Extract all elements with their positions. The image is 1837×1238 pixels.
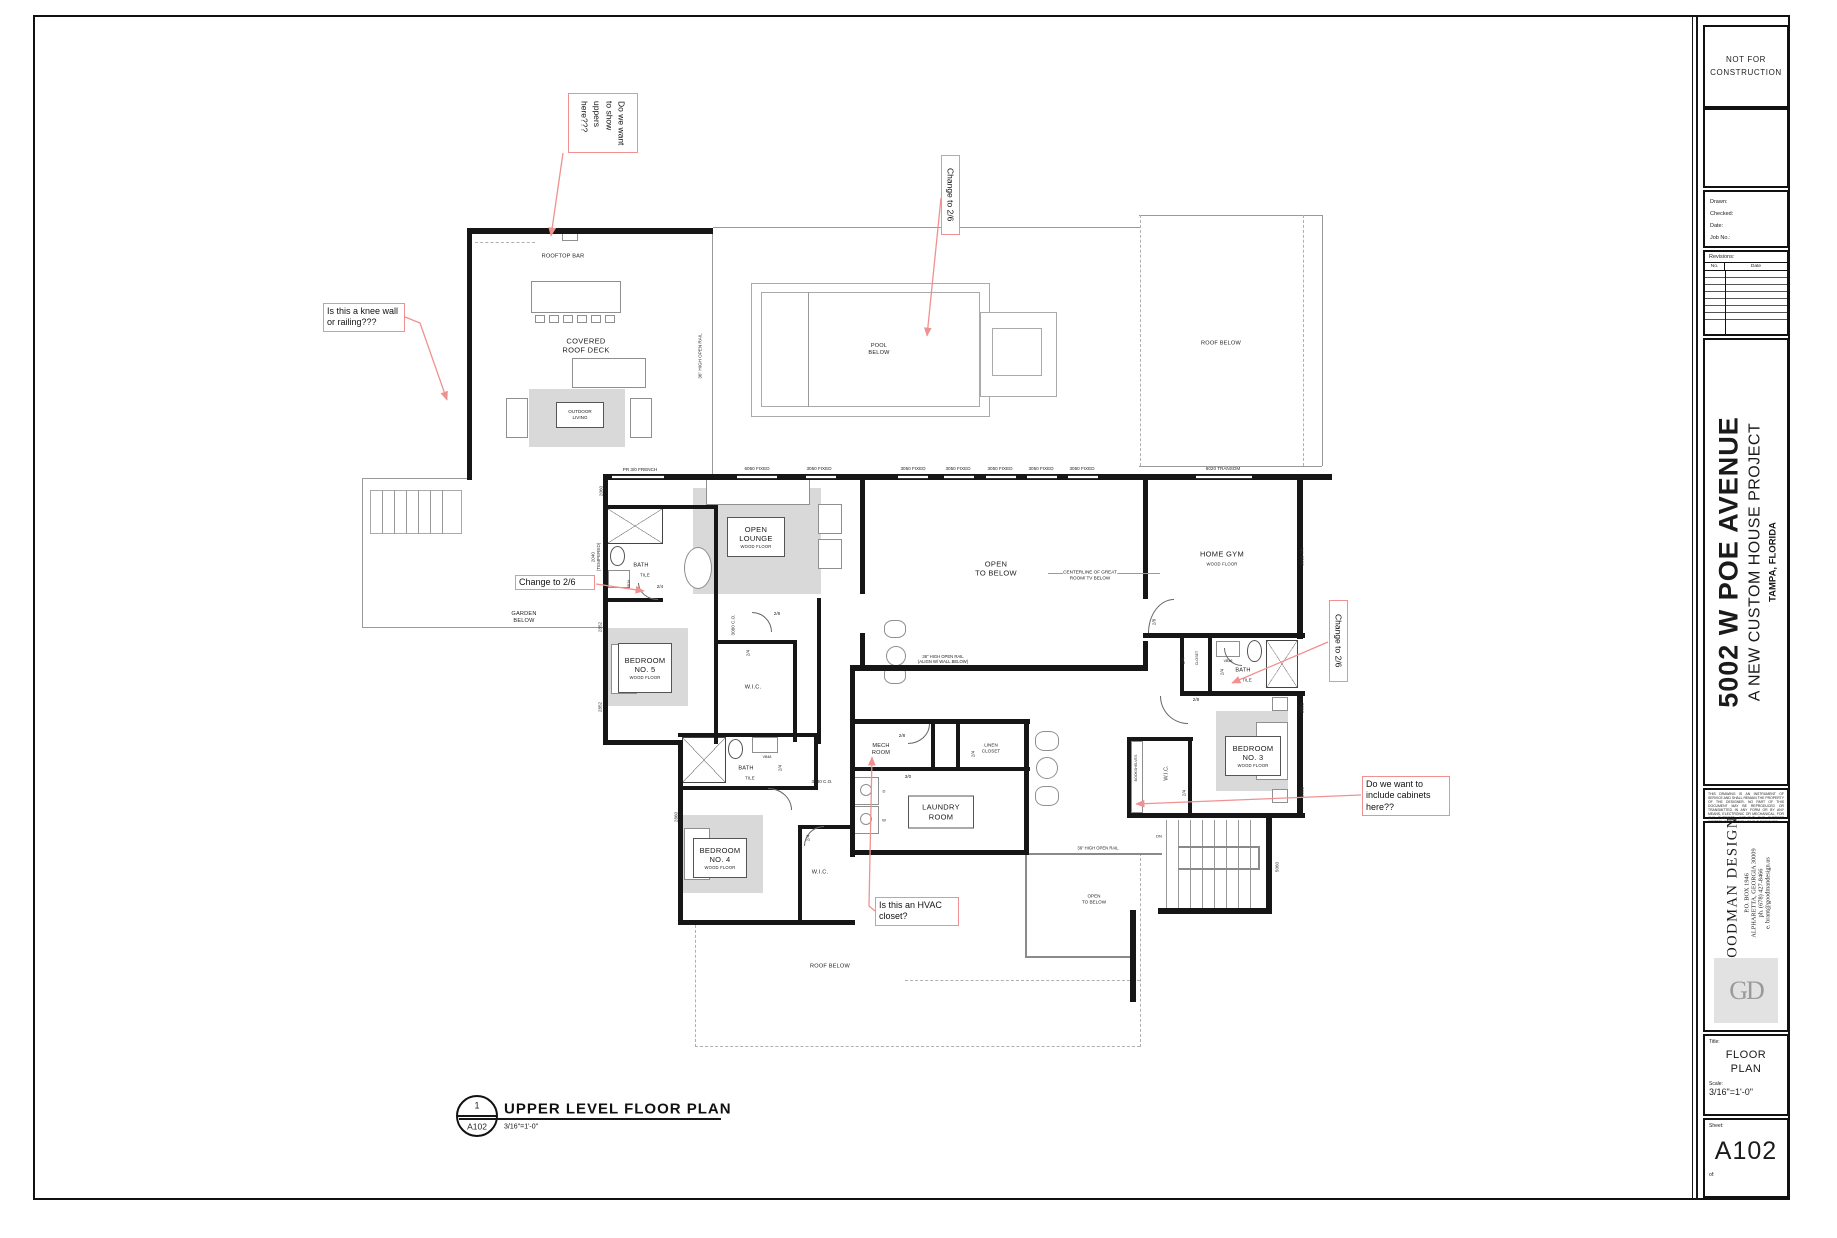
sheet-box: Sheet: A102 of:: [1703, 1118, 1789, 1198]
room-label-garden-below: GARDEN BELOW: [511, 611, 536, 625]
roof-edge: [1322, 215, 1323, 466]
wall: [603, 474, 608, 744]
door-label-2-8: 2/8: [1193, 697, 1199, 703]
roof-dashed-edge: [1140, 853, 1141, 1047]
firm-email: e. brant@goodmandesign.us: [1765, 816, 1772, 970]
revisions-divider: [1725, 270, 1726, 334]
door-label-2-4: 2/4: [745, 650, 751, 656]
revision-row: [1705, 278, 1787, 285]
scale-value: 3/16"=1'-0": [1705, 1087, 1787, 1097]
project-address: 5002 W POE AVENUE: [1714, 416, 1745, 708]
label-sub: WOOD FLOOR: [704, 865, 735, 870]
dim-2852: 2852: [1299, 787, 1305, 797]
wall: [1188, 737, 1192, 814]
wall: [1180, 637, 1184, 695]
stair-tread: [1190, 820, 1191, 908]
stair-tread: [1238, 820, 1239, 908]
revision-row: [1705, 292, 1787, 299]
firm-city: ALPHARETTA, GEORGIA 30009: [1751, 816, 1758, 970]
annotation-uppers: Do we want to show uppers here???: [568, 93, 638, 153]
chair: [684, 547, 712, 589]
roof-dashed-edge: [905, 980, 1140, 981]
wall: [956, 723, 960, 769]
of-label: of:: [1705, 1166, 1787, 1178]
dim-2852: 2852: [1299, 703, 1305, 713]
firm-logo: GD: [1714, 958, 1778, 1023]
pool-line: [808, 292, 809, 407]
window: [944, 475, 974, 479]
door-label-2-4: 2/4: [657, 584, 663, 590]
stair-tread: [418, 490, 419, 534]
room-label-outdoor-living: OUTDOOR LIVING: [556, 402, 604, 428]
open-rail: [1025, 956, 1133, 958]
chair: [630, 398, 652, 438]
spa-outline: [992, 328, 1042, 376]
room-label-wic4: W.I.C.: [812, 870, 828, 877]
stair-tread: [1202, 820, 1203, 908]
firm-box: GOODMAN DESIGN P.O. BOX 1946 ALPHARETTA,…: [1703, 821, 1789, 1032]
wall: [1158, 908, 1272, 914]
label-text: BEDROOM NO. 4: [700, 846, 741, 865]
chair: [1035, 786, 1059, 806]
revision-row: [1705, 271, 1787, 278]
roof-edge: [713, 227, 1140, 228]
stair-tread: [430, 490, 431, 534]
stair-tread: [1250, 820, 1251, 908]
view-title: UPPER LEVEL FLOOR PLAN: [504, 1101, 732, 1118]
window: [806, 475, 836, 479]
door-label-2-8: 2/8: [899, 733, 905, 739]
view-scale: 3/16"=1'-0": [504, 1124, 538, 1131]
wall: [1180, 691, 1305, 696]
stair-tread: [1166, 820, 1167, 908]
label-sub: WOOD FLOOR: [629, 675, 660, 680]
revision-row: [1705, 313, 1787, 320]
label-text: BEDROOM NO. 5: [625, 656, 666, 675]
stair-rail: [1258, 846, 1260, 870]
stamp-text: NOT FOR CONSTRUCTION: [1710, 54, 1782, 80]
view-number: 1: [474, 1100, 479, 1111]
annotation-cabinets: Do we want to include cabinets here??: [1362, 776, 1450, 816]
roof-edge: [712, 228, 713, 474]
sofa: [706, 477, 810, 505]
room-label-roof-below-2: ROOF BELOW: [810, 964, 850, 971]
toilet: [610, 546, 625, 566]
wall: [850, 719, 1030, 724]
room-sub-bath3: TILE: [1242, 677, 1252, 682]
room-label-linen-closet: LINEN CLOSET: [982, 742, 1000, 753]
label-sub: WOOD FLOOR: [1237, 763, 1268, 768]
room-sub-bath5: TILE: [640, 572, 650, 577]
fixture-label-washer: W: [882, 818, 886, 823]
dim-2852: 2852: [597, 622, 603, 632]
window-label-3050: 3050 FIXED: [945, 466, 970, 472]
view-sheet-ref: A102: [467, 1122, 487, 1133]
bar-counter-dashed: [475, 242, 535, 243]
chair: [577, 315, 587, 323]
wall: [1266, 818, 1272, 913]
wall: [467, 228, 472, 480]
room-label-bedroom-4: BEDROOM NO. 4WOOD FLOOR: [693, 838, 747, 878]
chair: [535, 315, 545, 323]
label-sub: WOOD FLOOR: [740, 544, 771, 549]
sheet-number: A102: [1705, 1137, 1787, 1166]
roof-dashed-edge: [695, 925, 696, 1047]
dim-2040-tempered: 2040 (TEMPERED): [591, 543, 602, 572]
roof-dashed-edge: [1140, 215, 1141, 466]
stair-rail: [1178, 868, 1260, 870]
dryer-door: [860, 784, 872, 796]
fixture-label-vb48: VB48: [763, 755, 772, 759]
room-label-bath5: BATH: [633, 563, 648, 570]
door-label-2-4: 2/4: [805, 835, 811, 841]
wall: [1143, 641, 1148, 671]
sheet-label: Sheet:: [1705, 1120, 1787, 1132]
dim-2852: 2852: [597, 702, 603, 712]
stair-tread: [1214, 820, 1215, 908]
field-drawn: Drawn:: [1710, 196, 1782, 208]
roof-dashed-edge: [1303, 215, 1304, 466]
wall: [717, 640, 797, 644]
annotation-change-26-bath3: Change to 2/6: [1329, 600, 1348, 682]
garden-edge: [362, 478, 467, 479]
room-label-open-to-below: OPEN TO BELOW: [975, 560, 1017, 579]
room-label-open-lounge: OPEN LOUNGEWOOD FLOOR: [727, 517, 785, 557]
rail-label-open-rail-align: 36" HIGH OPEN RAIL (ALIGN W/ WALL BELOW): [918, 654, 968, 665]
door-label-2-4: 2/4: [1181, 790, 1187, 796]
stair-tread: [1226, 820, 1227, 908]
field-date: Date:: [1710, 220, 1782, 232]
project-city: TAMPA, FLORIDA: [1768, 416, 1779, 708]
window-label-3050: 3050 FIXED: [806, 466, 831, 472]
project-title-rotated: 5002 W POE AVENUE A NEW CUSTOM HOUSE PRO…: [1714, 416, 1779, 708]
window-label-6050: 6050 FIXED: [744, 466, 769, 472]
table: [886, 646, 906, 666]
wall: [1024, 719, 1029, 855]
dim-3080-co: 3080 C.O.: [730, 615, 736, 636]
annotation-hvac: Is this an HVAC closet?: [875, 897, 959, 926]
wall: [1143, 474, 1148, 599]
window: [986, 475, 1016, 479]
firm-po: P.O. BOX 1946: [1744, 816, 1751, 970]
window-label-3050: 3050 FIXED: [1028, 466, 1053, 472]
door-label-2-8: 2/8: [1151, 619, 1157, 625]
wall: [860, 633, 865, 671]
stair-tread: [406, 490, 407, 534]
wall: [714, 505, 718, 603]
wall: [603, 740, 683, 745]
wall: [678, 733, 818, 737]
door-label-2-4: 2/4: [1219, 669, 1225, 675]
window: [898, 475, 928, 479]
washer-door: [860, 813, 872, 825]
revision-row: [1705, 306, 1787, 313]
label-text: BEDROOM NO. 3: [1233, 744, 1274, 763]
label-text: OUTDOOR LIVING: [568, 409, 591, 420]
open-rail: [1025, 853, 1027, 958]
window: [1027, 475, 1057, 479]
seal-box: [1703, 108, 1789, 188]
window: [1196, 475, 1252, 479]
annotation-knee-wall: Is this a knee wall or railing???: [323, 303, 405, 332]
rail-label-open-rail: 36" HIGH OPEN RAIL: [1077, 845, 1118, 850]
annotation-change-26-bath5: Change to 2/6: [515, 575, 595, 590]
stair-tread: [382, 490, 383, 534]
dim-2860: 2860: [673, 812, 679, 822]
wall: [1127, 813, 1305, 818]
door-label-2-4: 2/4: [1180, 658, 1186, 664]
room-label-roof-below: ROOF BELOW: [1201, 341, 1241, 348]
revision-row: [1705, 299, 1787, 306]
chair: [563, 315, 573, 323]
titleblock-divider: [1696, 15, 1698, 1200]
french-door-opening: [612, 475, 664, 479]
wall: [850, 850, 1029, 855]
scale-label: Scale:: [1705, 1077, 1787, 1087]
fixture-label-vb36: VB36: [627, 580, 631, 589]
room-label-covered-roof-deck: COVERED ROOF DECK: [562, 337, 609, 356]
door-label-2-8: 2/8: [774, 611, 780, 617]
annotation-change-26-pool: Change to 2/6: [941, 155, 960, 235]
wall: [678, 920, 855, 925]
drawing-sheet: ROOFTOP BAR COVERED ROOF DECK OUTDOOR LI…: [0, 0, 1837, 1238]
toilet: [1247, 640, 1262, 662]
wall: [1130, 910, 1136, 1002]
door-label-2-4: 2/4: [777, 765, 783, 771]
sheet-border: [33, 15, 1790, 1200]
stair-tread: [1178, 820, 1179, 908]
room-label-rooftop-bar: ROOFTOP BAR: [542, 254, 585, 261]
wall: [1208, 637, 1212, 695]
wall: [678, 740, 683, 925]
stairs-dn-label: DN: [1156, 834, 1162, 839]
disclaimer-box: THIS DRAWING IS AN INSTRUMENT OF SERVICE…: [1703, 788, 1789, 819]
rail-label-open-rail: 36" HIGH OPEN RAIL: [697, 333, 703, 378]
titleblock-divider: [1692, 15, 1693, 1200]
room-sub-bath4: TILE: [745, 775, 755, 780]
sofa: [572, 358, 646, 388]
field-job-no: Job No.:: [1710, 232, 1782, 244]
dim-3060-tr: 3060 TR: [1299, 548, 1305, 566]
wall: [851, 665, 1147, 671]
title-box: Title: FLOOR PLAN Scale: 3/16"=1'-0": [1703, 1034, 1789, 1116]
chair: [605, 315, 615, 323]
view-title-underline: [459, 1118, 721, 1120]
firm-info: GOODMAN DESIGN P.O. BOX 1946 ALPHARETTA,…: [1705, 823, 1791, 963]
revision-row: [1705, 285, 1787, 292]
room-label-bedroom-5: BEDROOM NO. 5WOOD FLOOR: [618, 643, 672, 693]
dim-2060: 2060: [598, 486, 604, 496]
wall: [1127, 737, 1193, 741]
room-label-closet3: CLOSET: [1195, 651, 1199, 665]
wall: [1127, 737, 1131, 817]
chair: [884, 620, 906, 638]
shower: [607, 508, 663, 544]
room-label-bath4: BATH: [738, 766, 753, 773]
chair: [549, 315, 559, 323]
firm-info-rotated: GOODMAN DESIGN P.O. BOX 1946 ALPHARETTA,…: [1725, 816, 1772, 970]
label-text: LAUNDRY ROOM: [922, 803, 960, 822]
revisions-col-no: No.: [1705, 263, 1725, 270]
door-label-2-4: 2/4: [970, 751, 976, 757]
door-label-3-0: 3/0: [905, 774, 911, 780]
project-title-box: 5002 W POE AVENUE A NEW CUSTOM HOUSE PRO…: [1703, 338, 1789, 786]
room-label-home-gym: HOME GYM: [1200, 549, 1244, 558]
chair: [818, 539, 842, 569]
wall: [1143, 633, 1305, 638]
project-subtitle: A NEW CUSTOM HOUSE PROJECT: [1747, 416, 1765, 708]
revisions-col-date: Date: [1725, 263, 1787, 270]
wall: [850, 665, 855, 857]
field-checked: Checked:: [1710, 208, 1782, 220]
roof-dashed-edge: [695, 1046, 1140, 1047]
room-sub-home-gym: WOOD FLOOR: [1206, 561, 1237, 566]
firm-name: GOODMAN DESIGN: [1725, 816, 1742, 970]
room-label-bookshelves: BOOKSHELVES: [1134, 755, 1138, 782]
stamp-box: NOT FOR CONSTRUCTION: [1703, 25, 1789, 108]
label-text: OPEN LOUNGE: [739, 525, 772, 544]
nightstand: [1272, 789, 1288, 803]
fixture-label-vb36: VB36: [1224, 659, 1233, 663]
dining-table: [531, 281, 621, 313]
revisions-box: Revisions: No. Date: [1703, 250, 1789, 336]
exterior-stair: [370, 490, 462, 534]
chair: [818, 504, 842, 534]
toilet: [728, 739, 743, 759]
stair-tread: [442, 490, 443, 534]
window-label-3050: 3050 FIXED: [1069, 466, 1094, 472]
room-label-mech-room: MECH ROOM: [872, 743, 890, 757]
room-label-wic5: W.I.C.: [745, 685, 761, 692]
wall: [931, 723, 935, 769]
room-label-laundry-room: LAUNDRY ROOM: [908, 796, 974, 829]
note-centerline: CENTERLINE OF GREAT ROOM/ TV BELOW: [1063, 569, 1117, 580]
window-label-3050: 3050 FIXED: [900, 466, 925, 472]
room-label-wic3: W.I.C.: [1164, 765, 1171, 780]
garden-edge: [362, 627, 603, 628]
wall: [678, 786, 818, 790]
dim-5060: 5060: [1274, 862, 1280, 872]
sink-vanity: [752, 737, 778, 753]
garden-edge: [362, 478, 363, 628]
title-label: Title:: [1705, 1036, 1787, 1045]
fields-box: Drawn: Checked: Date: Job No.:: [1703, 190, 1789, 248]
shower: [682, 737, 726, 783]
chair: [591, 315, 601, 323]
room-label-pool-below: POOL BELOW: [868, 343, 889, 357]
shower: [1266, 640, 1298, 688]
table: [1036, 757, 1058, 779]
chair: [506, 398, 528, 438]
room-label-open-to-below-2: OPEN TO BELOW: [1082, 893, 1106, 904]
wall: [798, 825, 802, 922]
view-title-bubble-divider: [457, 1115, 497, 1117]
window-label-3050: 3050 FIXED: [987, 466, 1012, 472]
wall: [467, 228, 713, 234]
nightstand: [1272, 697, 1288, 711]
wall: [850, 767, 1030, 771]
dim-3080-co: 3080 C.O.: [812, 779, 833, 785]
room-label-bedroom-3: BEDROOM NO. 3WOOD FLOOR: [1225, 736, 1281, 776]
wall: [603, 505, 716, 509]
roof-edge: [1139, 215, 1322, 216]
wall: [817, 598, 821, 744]
stair-tread: [394, 490, 395, 534]
window-label-french: PR 3/0 FRENCH: [623, 467, 657, 473]
chair: [1035, 731, 1059, 751]
window: [737, 475, 777, 479]
revisions-label: Revisions:: [1705, 252, 1787, 263]
wall: [798, 825, 855, 829]
wall: [714, 602, 718, 744]
revisions-header: No. Date: [1705, 263, 1787, 271]
window-label-6020: 6020 TRANSOM: [1206, 466, 1240, 472]
firm-phone: ph. (678) 427-8466: [1758, 816, 1765, 970]
room-label-bath3: BATH: [1235, 668, 1250, 675]
sheet-title: FLOOR PLAN: [1705, 1048, 1787, 1077]
stair-rail: [1178, 846, 1260, 848]
wall: [793, 640, 797, 742]
window: [1068, 475, 1098, 479]
fixture-label-dryer: D: [883, 789, 886, 794]
wall: [860, 474, 865, 594]
